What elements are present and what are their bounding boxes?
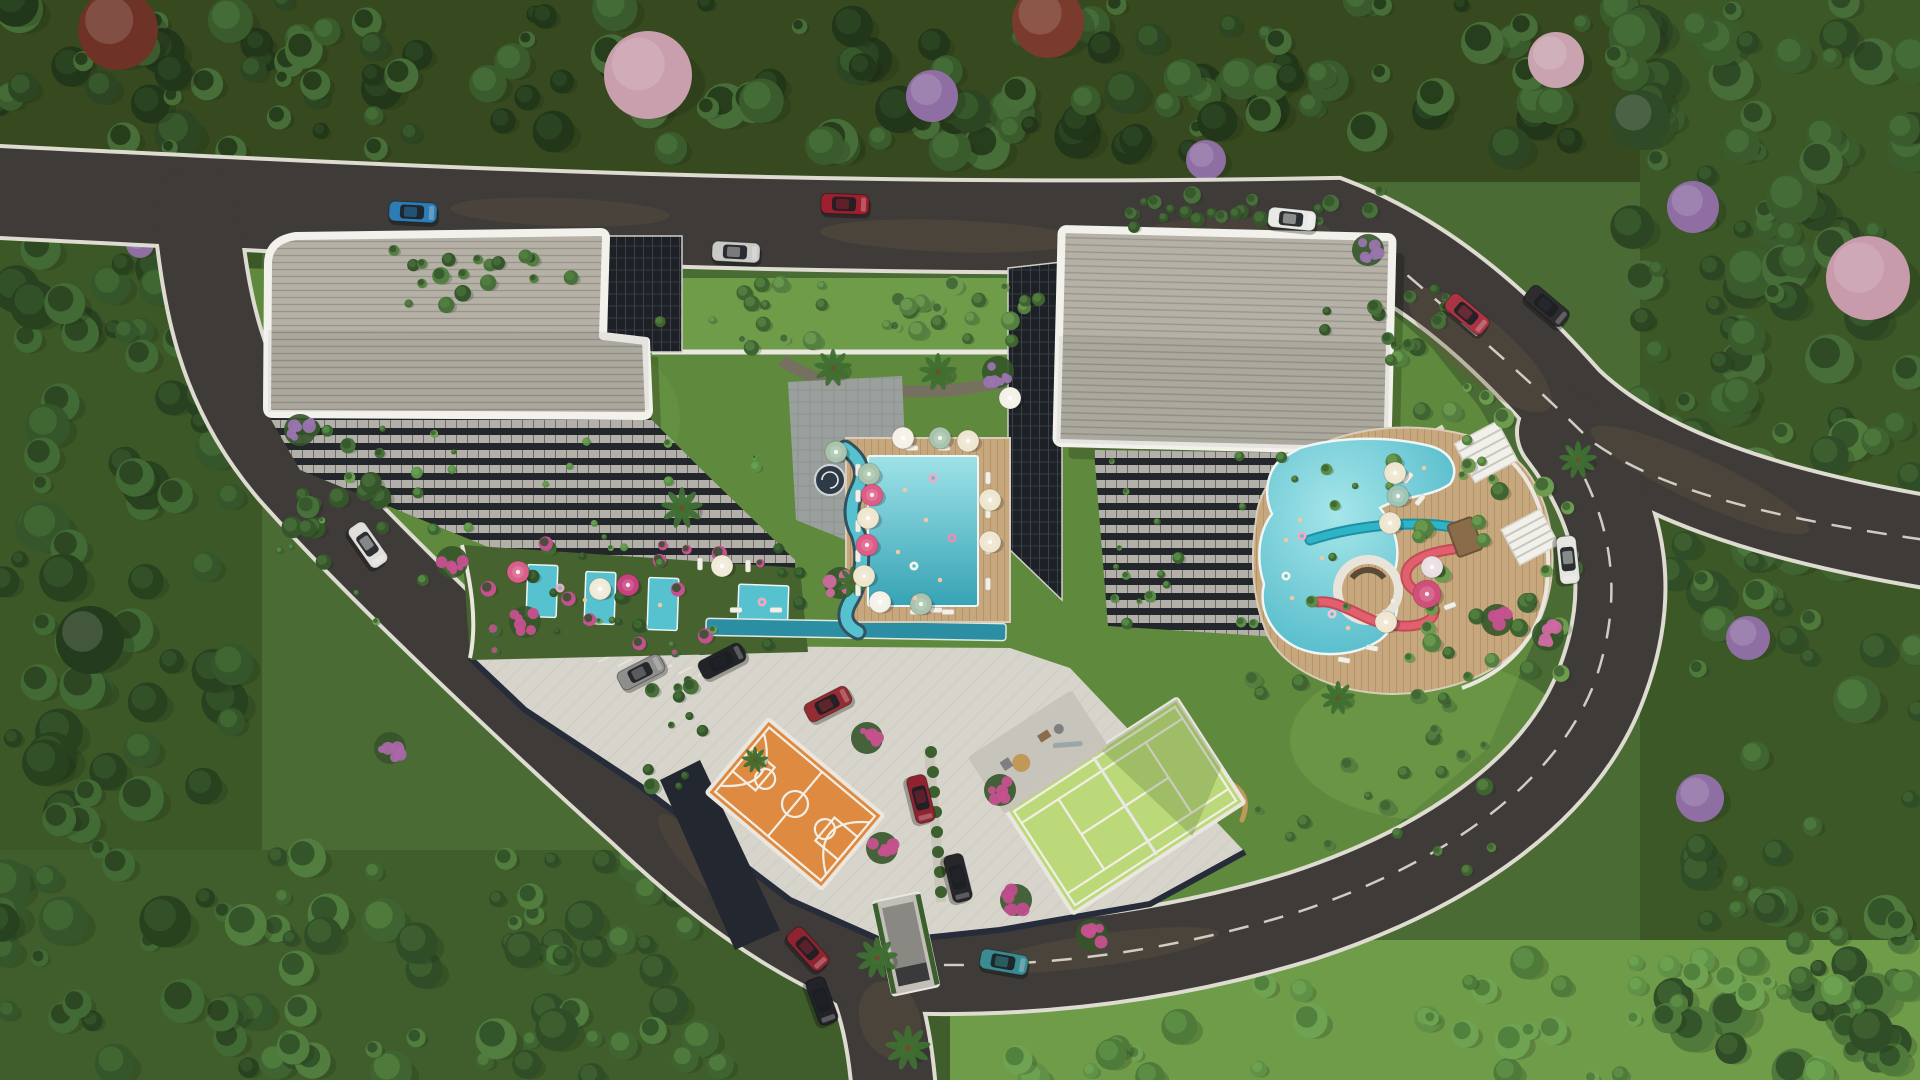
tree-highlight xyxy=(517,86,533,102)
tree-highlight xyxy=(491,892,501,902)
tree-highlight xyxy=(1413,531,1421,539)
pool-float-hole xyxy=(912,564,916,568)
tree-highlight xyxy=(1459,472,1465,478)
tree-highlight xyxy=(229,907,255,933)
tree-highlight xyxy=(645,779,655,789)
feature-tree-highlight xyxy=(1190,143,1214,167)
tree-highlight xyxy=(1260,27,1269,36)
tree-highlight xyxy=(1486,654,1495,663)
sun-lounger xyxy=(746,560,751,572)
flower-bloom xyxy=(526,625,536,635)
swimmer xyxy=(938,578,943,583)
tree-highlight xyxy=(380,426,384,430)
tree-highlight xyxy=(1477,779,1488,790)
tree-highlight xyxy=(1837,679,1866,708)
sun-lounger xyxy=(986,472,991,484)
tree-highlight xyxy=(362,473,375,486)
tree-highlight xyxy=(1167,205,1172,210)
tree-highlight xyxy=(320,518,324,522)
tree-highlight xyxy=(43,557,73,587)
tree-highlight xyxy=(1380,800,1390,810)
tree-highlight xyxy=(879,89,908,118)
main-swimming-pool xyxy=(868,456,978,606)
tree-highlight xyxy=(1702,257,1718,273)
tree-highlight xyxy=(683,545,689,551)
east-roof-shading xyxy=(1056,336,1390,451)
tree-highlight xyxy=(354,590,358,594)
tree-highlight xyxy=(1726,129,1749,152)
flower-bloom xyxy=(1001,889,1012,900)
tree-highlight xyxy=(1464,976,1473,985)
tree-highlight xyxy=(743,82,771,110)
tree-highlight xyxy=(665,477,671,483)
sun-lounger xyxy=(856,490,861,502)
tree-highlight xyxy=(1541,1018,1559,1036)
tree-highlight xyxy=(11,74,30,93)
tree-highlight xyxy=(1739,949,1757,967)
swimmer xyxy=(1298,518,1303,523)
tree-highlight xyxy=(277,72,287,82)
tree-highlight xyxy=(1512,15,1529,32)
tree-highlight xyxy=(287,997,307,1017)
tree-highlight xyxy=(247,32,263,48)
tree-highlight xyxy=(870,128,885,143)
tree-highlight xyxy=(1365,792,1370,797)
tree-highlight xyxy=(345,473,352,480)
tree-highlight xyxy=(1766,285,1778,297)
tree-highlight xyxy=(418,279,424,285)
tree-highlight xyxy=(1430,285,1436,291)
swimmer xyxy=(913,596,918,601)
tree-highlight xyxy=(317,555,327,565)
tree-highlight xyxy=(456,286,466,296)
tree-highlight xyxy=(1763,977,1771,985)
flower-bloom xyxy=(528,608,539,619)
flower-bloom xyxy=(886,843,898,855)
tree-highlight xyxy=(1495,409,1508,422)
tree-highlight xyxy=(1725,379,1748,402)
tree-highlight xyxy=(686,713,691,718)
flower-bloom xyxy=(989,793,1001,805)
tree-highlight xyxy=(644,765,651,772)
tree-highlight xyxy=(497,849,511,863)
tree-highlight xyxy=(1718,1035,1738,1055)
tree-highlight xyxy=(684,680,694,690)
tree-highlight xyxy=(543,481,547,485)
tree-highlight xyxy=(550,589,555,594)
tree-highlight xyxy=(1352,483,1356,487)
tree-highlight xyxy=(1867,223,1879,235)
tree-highlight xyxy=(1634,309,1647,322)
tree-highlight xyxy=(1900,464,1918,482)
feature-tree-highlight xyxy=(1672,185,1703,216)
tree-highlight xyxy=(1003,313,1015,325)
tree-highlight xyxy=(1376,187,1382,193)
tree-highlight xyxy=(36,867,53,884)
tree-highlight xyxy=(1123,489,1127,493)
tree-highlight xyxy=(276,890,286,900)
tree-highlight xyxy=(1453,1022,1470,1039)
tree-highlight xyxy=(1002,284,1008,290)
feature-tree-highlight xyxy=(612,38,665,91)
tree-highlight xyxy=(1293,676,1303,686)
tree-highlight xyxy=(1431,725,1438,732)
tree-highlight xyxy=(642,1019,659,1036)
tree-highlight xyxy=(48,286,74,312)
tree-highlight xyxy=(1223,61,1249,87)
tree-highlight xyxy=(194,554,213,573)
tree-highlight xyxy=(400,925,426,951)
tree-highlight xyxy=(1185,187,1196,198)
tree-highlight xyxy=(793,20,803,30)
flower-bloom xyxy=(1373,248,1384,259)
tree-highlight xyxy=(1770,176,1802,208)
tree-highlight xyxy=(1788,932,1803,947)
tree-highlight xyxy=(481,276,491,286)
tree-highlight xyxy=(1735,222,1746,233)
tree-highlight xyxy=(1464,384,1470,390)
tree-highlight xyxy=(35,614,49,628)
tree-highlight xyxy=(16,327,33,344)
tree-highlight xyxy=(1671,995,1683,1007)
flower-bloom xyxy=(514,618,526,630)
tree-highlight xyxy=(366,107,378,119)
tree-highlight xyxy=(805,332,817,344)
pool-float-hole xyxy=(760,600,764,604)
tree-highlight xyxy=(1512,620,1523,631)
pool-float-hole xyxy=(1284,574,1288,578)
tree-highlight xyxy=(1802,611,1815,624)
flower-bloom xyxy=(988,786,996,794)
feature-tree-highlight xyxy=(1730,619,1756,645)
tree-highlight xyxy=(1246,672,1257,683)
tree-highlight xyxy=(1613,14,1645,46)
tree-highlight xyxy=(373,618,378,623)
tree-highlight xyxy=(540,537,549,546)
tree-highlight xyxy=(669,642,673,646)
tree-highlight xyxy=(1539,89,1563,113)
tree-highlight xyxy=(774,277,785,288)
tree-highlight xyxy=(973,294,982,303)
tree-highlight xyxy=(218,138,237,157)
tree-highlight xyxy=(611,1032,629,1050)
swimmer xyxy=(658,603,663,608)
tree-highlight xyxy=(1023,118,1033,128)
tree-highlight xyxy=(1496,1060,1514,1078)
tree-highlight xyxy=(536,114,562,140)
tree-highlight xyxy=(646,684,655,693)
flower-bloom xyxy=(457,564,464,571)
tree-highlight xyxy=(34,476,45,487)
tree-highlight xyxy=(1780,628,1797,645)
tree-highlight xyxy=(123,779,151,807)
tree-highlight xyxy=(1324,840,1331,847)
flower-bloom xyxy=(1545,638,1554,647)
tree-highlight xyxy=(284,932,294,942)
tree-highlight xyxy=(114,255,128,269)
flower-bloom xyxy=(864,729,872,737)
tree-highlight xyxy=(642,956,663,977)
tree-highlight xyxy=(1481,742,1486,747)
tree-highlight xyxy=(493,257,501,265)
tree-highlight xyxy=(279,1034,300,1055)
tree-highlight xyxy=(1523,1024,1534,1035)
tree-highlight xyxy=(757,318,766,327)
tree-highlight xyxy=(1731,320,1754,343)
tree-highlight xyxy=(1432,315,1441,324)
tree-highlight xyxy=(1301,95,1315,109)
tree-highlight xyxy=(299,497,313,511)
tree-highlight xyxy=(657,134,677,154)
tree-highlight xyxy=(1084,1064,1094,1074)
tree-highlight xyxy=(93,755,116,778)
tree-highlight xyxy=(110,125,130,145)
tree-highlight xyxy=(1342,758,1352,768)
tree-highlight xyxy=(554,628,558,632)
tree-highlight xyxy=(753,455,756,458)
tree-highlight xyxy=(835,8,861,34)
tree-highlight xyxy=(1292,981,1306,995)
tree-highlight xyxy=(565,271,574,280)
tree-highlight xyxy=(552,71,567,86)
tree-highlight xyxy=(197,890,209,902)
tree-highlight xyxy=(405,42,424,61)
tree-highlight xyxy=(883,321,889,327)
tree-highlight xyxy=(1323,307,1328,312)
tree-highlight xyxy=(43,900,74,931)
feature-tree-highlight xyxy=(62,611,103,652)
tree-highlight xyxy=(1145,591,1152,598)
tree-highlight xyxy=(535,6,550,21)
tree-highlight xyxy=(1863,636,1884,657)
tree-highlight xyxy=(1684,963,1701,980)
tree-highlight xyxy=(1191,213,1200,222)
tree-highlight xyxy=(119,461,143,485)
tree-highlight xyxy=(1443,403,1456,416)
tree-highlight xyxy=(362,34,380,52)
tree-highlight xyxy=(33,951,44,962)
tree-highlight xyxy=(1173,553,1180,560)
tree-highlight xyxy=(674,691,681,698)
tree-highlight xyxy=(1835,949,1857,971)
flower-bloom xyxy=(1360,252,1371,263)
tree-highlight xyxy=(322,426,329,433)
tree-highlight xyxy=(1158,571,1163,576)
tree-highlight xyxy=(638,937,650,949)
flower-bloom xyxy=(1003,374,1012,383)
tree-highlight xyxy=(431,430,436,435)
tree-highlight xyxy=(1363,204,1373,214)
tree-highlight xyxy=(220,485,236,501)
tree-highlight xyxy=(1803,144,1830,171)
tree-highlight xyxy=(1296,1006,1318,1028)
tree-highlight xyxy=(1320,325,1327,332)
tree-highlight xyxy=(1117,546,1120,549)
tree-highlight xyxy=(1463,436,1470,443)
tree-highlight xyxy=(963,334,970,341)
tree-highlight xyxy=(539,1011,566,1038)
tree-highlight xyxy=(1399,767,1407,775)
flower-bloom xyxy=(1016,903,1030,917)
tree-highlight xyxy=(563,593,572,602)
tree-highlight xyxy=(698,726,705,733)
tree-highlight xyxy=(1774,424,1787,437)
tree-highlight xyxy=(1814,1003,1826,1015)
flower-bloom xyxy=(436,556,448,568)
swimmer xyxy=(924,518,929,523)
tree-highlight xyxy=(1383,333,1391,341)
tree-highlight xyxy=(1893,972,1913,992)
pool-float-hole xyxy=(558,586,562,590)
tree-highlight xyxy=(520,250,529,259)
tree-highlight xyxy=(674,684,680,690)
tree-highlight xyxy=(1498,1026,1520,1048)
tree-highlight xyxy=(568,903,593,928)
tree-highlight xyxy=(1108,74,1134,100)
tree-highlight xyxy=(1165,1011,1187,1033)
tree-highlight xyxy=(1470,609,1480,619)
sun-lounger xyxy=(730,608,742,613)
tree-highlight xyxy=(1307,596,1314,603)
tree-highlight xyxy=(1738,983,1756,1001)
tree-highlight xyxy=(524,1033,535,1044)
tree-highlight xyxy=(1700,912,1713,925)
tree-highlight xyxy=(366,864,378,876)
tree-highlight xyxy=(1757,895,1776,914)
tree-highlight xyxy=(1114,564,1118,568)
flower-bloom xyxy=(302,419,316,433)
tree-highlight xyxy=(1279,65,1297,83)
tree-highlight xyxy=(1462,865,1469,872)
tree-highlight xyxy=(92,841,104,853)
tree-highlight xyxy=(412,468,419,475)
tree-highlight xyxy=(158,383,180,405)
swimmer xyxy=(896,550,901,555)
tree-highlight xyxy=(1005,1047,1023,1065)
tree-highlight xyxy=(117,322,131,336)
tree-highlight xyxy=(474,255,480,261)
tree-highlight xyxy=(497,46,520,69)
tree-highlight xyxy=(685,1023,708,1046)
tree-highlight xyxy=(1464,672,1470,678)
tree-highlight xyxy=(220,710,237,727)
flower-bloom xyxy=(394,748,406,760)
tree-highlight xyxy=(1730,902,1740,912)
tree-highlight xyxy=(1513,948,1534,969)
tree-highlight xyxy=(809,129,833,153)
tree-highlight xyxy=(1888,911,1905,928)
tree-highlight xyxy=(1777,39,1800,62)
tree-highlight xyxy=(1733,876,1743,886)
tree-highlight xyxy=(710,626,715,631)
tree-highlight xyxy=(966,313,974,321)
tree-highlight xyxy=(283,518,296,531)
swimmer xyxy=(1422,466,1427,471)
tree-highlight xyxy=(240,1059,253,1072)
tree-highlight xyxy=(1717,967,1735,985)
tree-highlight xyxy=(161,651,176,666)
tree-highlight xyxy=(277,547,282,552)
tree-highlight xyxy=(1434,847,1440,853)
tree-highlight xyxy=(1322,464,1329,471)
sun-lounger xyxy=(698,558,703,570)
tree-highlight xyxy=(1712,353,1725,366)
flower-bloom xyxy=(878,848,886,856)
tree-highlight xyxy=(1247,195,1254,202)
tree-highlight xyxy=(1852,1012,1879,1039)
tree-highlight xyxy=(24,667,47,690)
tree-highlight xyxy=(1607,47,1621,61)
tree-highlight xyxy=(1330,501,1337,508)
tree-highlight xyxy=(709,317,714,322)
tree-highlight xyxy=(215,646,241,672)
tree-highlight xyxy=(418,259,424,265)
tree-highlight xyxy=(1477,534,1486,543)
flower-bloom xyxy=(1494,609,1505,620)
tree-highlight xyxy=(1614,208,1641,235)
tree-highlight xyxy=(1343,603,1348,608)
tree-highlight xyxy=(300,521,311,532)
tree-highlight xyxy=(530,275,536,281)
tree-highlight xyxy=(1810,338,1840,368)
tree-highlight xyxy=(1414,404,1425,415)
flower-bloom xyxy=(378,746,385,753)
west-roof-shading xyxy=(268,330,649,412)
tree-highlight xyxy=(672,650,677,655)
tree-highlight xyxy=(910,322,922,334)
swimmer xyxy=(903,488,908,493)
tree-highlight xyxy=(1201,104,1226,129)
tree-highlight xyxy=(1393,829,1400,836)
tree-highlight xyxy=(459,269,466,276)
tree-highlight xyxy=(1122,618,1129,625)
tree-highlight xyxy=(1526,594,1534,602)
tree-highlight xyxy=(1628,263,1652,287)
tree-highlight xyxy=(664,440,669,445)
tree-highlight xyxy=(315,19,332,36)
tree-highlight xyxy=(1703,608,1725,630)
flower-bloom xyxy=(1095,936,1108,949)
tree-highlight xyxy=(1298,816,1306,824)
tree-highlight xyxy=(161,480,183,502)
tree-highlight xyxy=(144,899,176,931)
tree-highlight xyxy=(1006,335,1014,343)
tree-highlight xyxy=(597,618,601,622)
swimmer xyxy=(1346,626,1351,631)
tree-highlight xyxy=(216,903,228,915)
tree-highlight xyxy=(1806,1061,1825,1080)
tree-highlight xyxy=(818,282,824,288)
tree-highlight xyxy=(1890,116,1911,137)
tree-highlight xyxy=(14,285,44,315)
tree-highlight xyxy=(763,639,771,647)
tree-highlight xyxy=(608,545,612,549)
tree-highlight xyxy=(774,544,781,551)
tree-highlight xyxy=(1157,94,1173,110)
flower-bloom xyxy=(1549,621,1562,634)
tree-highlight xyxy=(699,99,713,113)
tree-highlight xyxy=(314,124,324,134)
tree-highlight xyxy=(1885,413,1904,432)
tree-highlight xyxy=(1292,476,1296,480)
tree-highlight xyxy=(583,938,603,958)
tree-highlight xyxy=(492,647,498,653)
swimmer xyxy=(1320,556,1325,561)
tree-highlight xyxy=(1536,478,1549,491)
tree-highlight xyxy=(188,770,211,793)
tree-highlight xyxy=(1629,978,1641,990)
tree-highlight xyxy=(164,982,191,1009)
